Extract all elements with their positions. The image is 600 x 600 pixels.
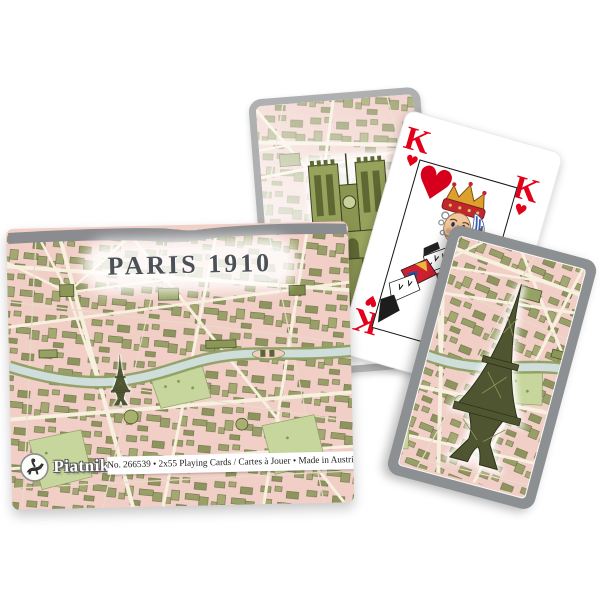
horse-rider-icon bbox=[21, 454, 49, 482]
title-banner: PARIS 1910 bbox=[90, 245, 289, 285]
bottom-strip: Piatnik No. 266539 • 2x55 Playing Cards … bbox=[11, 443, 354, 491]
info-bar: No. 266539 • 2x55 Playing Cards / Cartes… bbox=[107, 451, 354, 475]
heart-suit-icon: ♥ bbox=[512, 202, 529, 220]
piatnik-logo bbox=[19, 452, 50, 483]
product-photo: K ♥ K ♥ K ♥ bbox=[0, 0, 600, 600]
brand-name: Piatnik bbox=[53, 456, 110, 477]
box-title: PARIS 1910 bbox=[107, 248, 272, 282]
info-line: No. 266539 • 2x55 Playing Cards / Cartes… bbox=[107, 455, 354, 471]
card-box: PARIS 1910 Piatnik No. 266539 • 2x55 Pla… bbox=[6, 221, 354, 510]
